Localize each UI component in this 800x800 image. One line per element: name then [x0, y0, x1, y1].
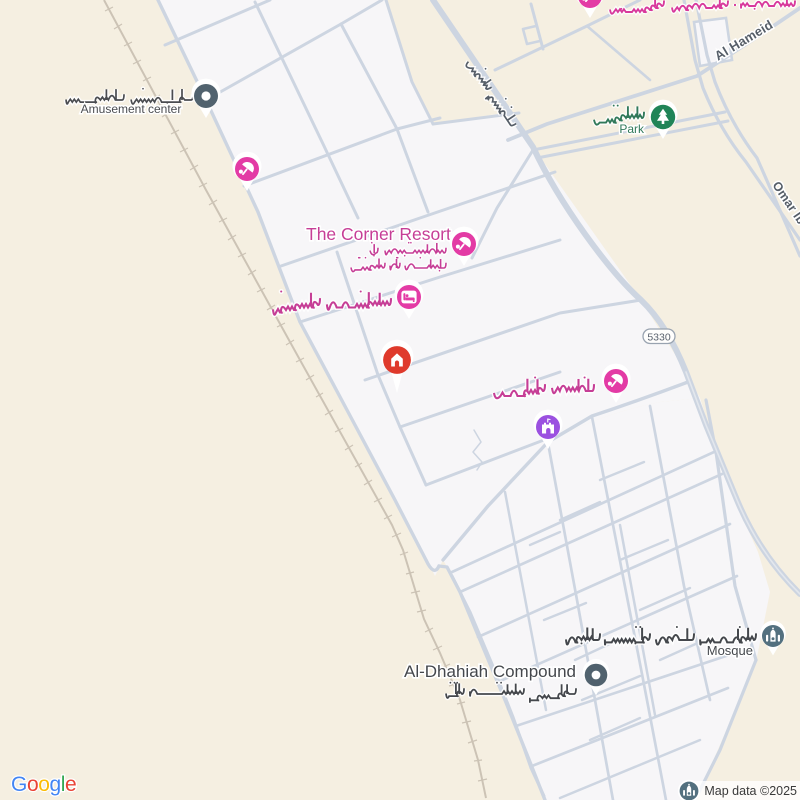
svg-text:5330: 5330 [647, 332, 671, 344]
svg-text:The Corner Resort: The Corner Resort [306, 224, 451, 244]
svg-text:Google: Google [11, 773, 76, 796]
svg-text:Al-Dhahiah Compound: Al-Dhahiah Compound [404, 662, 576, 681]
svg-text:Map data ©2025: Map data ©2025 [704, 784, 797, 798]
svg-text:Mosque: Mosque [707, 643, 753, 658]
svg-text:Park: Park [619, 122, 645, 136]
svg-text:Amusement center: Amusement center [81, 102, 182, 116]
